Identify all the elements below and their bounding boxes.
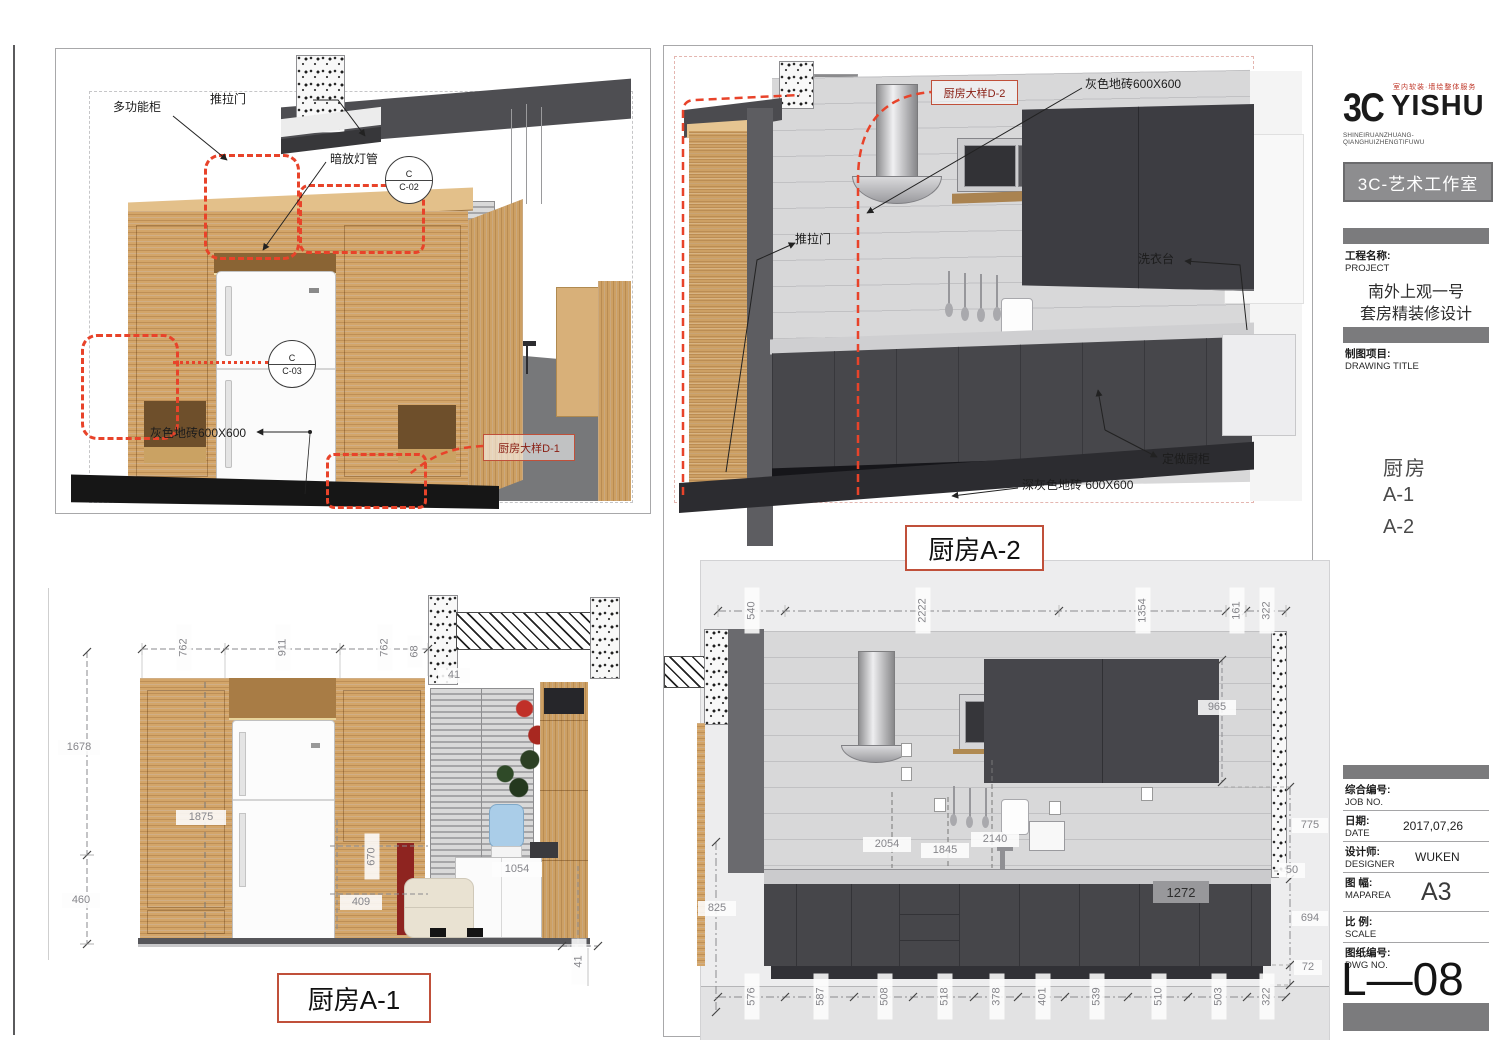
dim-label: 587	[814, 974, 829, 1020]
door-seam	[1251, 884, 1252, 966]
drawer-line	[899, 914, 959, 915]
date-label-en: DATE	[1345, 828, 1370, 839]
dim-label: 965	[1198, 700, 1236, 715]
designer-label-cn: 设计师:	[1345, 846, 1380, 858]
studio-box: 3C-艺术工作室	[1343, 162, 1493, 202]
wall-switch	[901, 743, 912, 757]
divider-bar	[1343, 228, 1489, 244]
label-custom-cabinet: 定做厨柜	[1162, 450, 1210, 467]
elev-toe-kick	[771, 966, 1263, 979]
wood-pillar	[689, 131, 747, 499]
dim-label: 576	[745, 974, 760, 1020]
dim-label: 460	[62, 893, 100, 908]
elev-a1-margin-line	[48, 588, 49, 960]
logo-mark: 3C	[1343, 86, 1383, 131]
utensil	[953, 786, 955, 816]
elev-a1-floor-strip	[138, 944, 590, 947]
elev-a2-door-frame	[697, 723, 705, 966]
divider-bar	[1343, 327, 1489, 343]
fridge-logo	[311, 743, 320, 748]
dim-label: 518	[938, 974, 953, 1020]
dim-label: 2140	[971, 832, 1019, 847]
drawing-name-line1: 厨房	[1383, 452, 1427, 481]
utensil-head	[945, 303, 953, 317]
project-name-line1: 南外上观一号	[1341, 278, 1491, 302]
drawing-name-line3: A-2	[1383, 516, 1414, 539]
elev-a2-column	[704, 629, 730, 725]
map-label-en: MAPAREA	[1345, 890, 1391, 901]
desk-item	[530, 842, 558, 858]
elev-paper-towel	[1001, 799, 1029, 835]
utensil	[948, 271, 950, 305]
dim-label: 911	[276, 625, 291, 671]
dim-label: 503	[1212, 974, 1227, 1020]
utensil-head	[950, 814, 957, 826]
door-inset	[343, 690, 421, 842]
label-floor-tile-a2: 深灰色地砖 600X600	[1022, 476, 1133, 493]
dim-label: 1054	[492, 862, 542, 877]
dim-label: 694	[1292, 911, 1328, 926]
dim-label: 1678	[58, 740, 100, 755]
elev-a2-title-text: 厨房A-2	[928, 530, 1020, 567]
dim-chip-1272: 1272	[1153, 881, 1209, 903]
designer-value: WUKEN	[1415, 850, 1460, 864]
elev-a2-door-band	[728, 629, 764, 873]
divider-bar	[1343, 765, 1489, 779]
wall-switch	[1141, 787, 1153, 801]
logo-tagline-en: SHINEIRUANZHUANG-QIANGHUIZHENGTIFUWU	[1343, 132, 1493, 146]
utensil	[985, 788, 987, 818]
detail-ref-d1: 厨房大样D-1	[483, 434, 575, 461]
seat-line	[405, 907, 473, 908]
dim-label: 68	[408, 636, 423, 668]
dim-label: 508	[878, 974, 893, 1020]
side-wood-counter	[556, 287, 600, 417]
label-laundry: 洗衣台	[1138, 250, 1174, 267]
dim-label: 539	[1090, 974, 1105, 1020]
utensil	[996, 275, 998, 309]
elev-wall-cabinet	[984, 659, 1219, 783]
door-seam	[1019, 884, 1020, 966]
concrete-column	[779, 61, 814, 109]
fridge-split-line	[233, 799, 334, 801]
row-divider	[1343, 911, 1489, 912]
callout-c02-letter: C	[406, 169, 413, 179]
door-inset	[147, 690, 225, 908]
fridge-logo	[309, 288, 319, 293]
fridge-handle	[239, 732, 246, 796]
dim-label: 41	[438, 668, 470, 683]
detail-ref-d2: 厨房大样D-2	[931, 80, 1018, 105]
green-plant	[495, 760, 529, 806]
row-divider	[1343, 942, 1489, 943]
dim-label: 378	[990, 974, 1005, 1020]
label-multi-cabinet: 多功能柜	[113, 98, 161, 115]
elev-a2-beam	[664, 656, 708, 688]
callout-connector	[173, 361, 269, 364]
logo-name: YISHU	[1391, 90, 1485, 123]
shelf-line	[540, 720, 588, 721]
shelf-line	[540, 860, 588, 861]
door-seam	[899, 884, 900, 966]
door-inset	[147, 910, 225, 934]
date-value: 2017,07,26	[1403, 819, 1463, 833]
logo: 3C 室内软装·墙绘整体服务 YISHU SHINEIRUANZHUANG-QI…	[1343, 80, 1493, 150]
label-floor-tile-a1: 灰色地砖600X600	[150, 424, 246, 441]
utensil	[969, 788, 971, 818]
door-seam	[796, 884, 797, 966]
job-label-cn: 综合编号:	[1345, 784, 1391, 796]
fridge-handle	[225, 286, 232, 356]
elev-a1-tall-cabinet	[540, 682, 588, 940]
drawer-line	[899, 940, 959, 941]
dim-label: 2054	[863, 837, 911, 852]
row-divider	[1343, 872, 1489, 873]
dim-label: 762	[177, 625, 192, 671]
dim-label: 775	[1292, 818, 1328, 833]
door-seam	[1079, 884, 1080, 966]
studio-box-text: 3C-艺术工作室	[1358, 170, 1478, 195]
map-value: A3	[1421, 878, 1452, 907]
pendant-cord	[526, 104, 527, 204]
fridge-handle	[239, 813, 246, 887]
label-hidden-light: 暗放灯管	[330, 150, 378, 167]
dim-label: 1354	[1136, 588, 1151, 634]
water-cooler-bottle	[489, 804, 524, 848]
range-hood-chimney	[876, 84, 918, 184]
dim-label: 1845	[921, 843, 969, 858]
detail-callout-region	[204, 154, 300, 260]
shelf-items	[544, 688, 584, 714]
titleblock: 3C 室内软装·墙绘整体服务 YISHU SHINEIRUANZHUANG-QI…	[1341, 60, 1493, 1050]
utensil	[964, 273, 966, 309]
elev-tray	[1029, 821, 1065, 851]
dim-label: 72	[1294, 960, 1322, 975]
wall-switch	[1049, 801, 1061, 815]
utensil-head	[961, 307, 969, 321]
chair-foot	[467, 928, 483, 937]
utensil-head	[982, 816, 989, 828]
dwg-number: L—08	[1341, 952, 1464, 1006]
elev-a1-beam	[456, 612, 592, 650]
drawing-sheet: C C-02 C C-03 多功能柜 推拉门 暗放灯管 灰色地砖600X600 …	[0, 0, 1500, 1060]
dim-label: 161	[1230, 588, 1245, 634]
door-seam	[1139, 884, 1140, 966]
elev-a1-column-right	[590, 597, 620, 679]
dim-label: 510	[1152, 974, 1167, 1020]
microwave-door	[964, 145, 1016, 187]
project-label-cn: 工程名称:	[1345, 250, 1391, 262]
utensil-head	[966, 816, 973, 828]
elev-floor-band	[701, 986, 1329, 1040]
dim-label: 762	[378, 625, 393, 671]
elev-a2-right-concrete	[1271, 631, 1287, 878]
label-sliding-door-a1: 推拉门	[210, 90, 246, 107]
callout-c02: C C-02	[385, 156, 433, 204]
wall-switch	[934, 798, 946, 812]
callout-c02-code: C-02	[399, 182, 419, 192]
utensil-head	[993, 307, 1001, 321]
utensil-head	[977, 308, 985, 322]
cabinet-seam	[1102, 659, 1103, 783]
door-seam	[851, 884, 852, 966]
callout-c03: C C-03	[268, 340, 316, 388]
dim-label: 50	[1279, 863, 1305, 878]
elev-hood-chimney	[858, 651, 895, 751]
project-name-line2: 套房精装修设计	[1341, 300, 1491, 324]
row-divider	[1343, 841, 1489, 842]
wall-switch	[901, 767, 912, 781]
callout-c03-letter: C	[289, 353, 296, 363]
elev-a1-title: 厨房A-1	[277, 973, 431, 1023]
divider-bar	[1343, 1003, 1489, 1031]
dim-label: 41	[572, 939, 587, 985]
label-wall-tile-a2: 灰色地砖600X600	[1085, 75, 1181, 92]
pendant-cord	[541, 107, 542, 204]
table-leg	[526, 346, 528, 374]
drawing-title-label-en: DRAWING TITLE	[1345, 361, 1419, 372]
dim-label: 540	[745, 588, 760, 634]
callout-divider	[386, 180, 432, 181]
dim-label: 670	[365, 834, 380, 880]
dim-label: 409	[340, 895, 382, 910]
designer-label-en: DESIGNER	[1345, 859, 1395, 870]
soffit	[229, 678, 336, 720]
shelf-line	[540, 790, 588, 791]
drawing-name-line2: A-1	[1383, 484, 1414, 507]
utensil	[980, 274, 982, 310]
dim-label: 322	[1260, 588, 1275, 634]
callout-c03-code: C-03	[282, 366, 302, 376]
dim-label: 825	[698, 901, 736, 916]
row-divider	[1343, 810, 1489, 811]
sheet-edge-line	[13, 45, 15, 1035]
elev-a1-title-text: 厨房A-1	[308, 980, 400, 1017]
label-sliding-door-a2: 推拉门	[795, 230, 831, 247]
map-label-cn: 图 幅:	[1345, 877, 1372, 889]
chair-foot	[430, 928, 446, 937]
detail-callout-region	[326, 453, 427, 509]
elev-a1-refrigerator	[232, 720, 335, 942]
callout-divider	[269, 364, 315, 365]
door-seam	[959, 884, 960, 966]
scale-label-cn: 比 例:	[1345, 916, 1372, 928]
drawing-title-label-cn: 制图项目:	[1345, 348, 1391, 360]
dim-label: 1875	[176, 810, 226, 825]
project-label-en: PROJECT	[1345, 263, 1389, 274]
dim-label: 401	[1036, 974, 1051, 1020]
scale-label-en: SCALE	[1345, 929, 1376, 940]
dim-label: 322	[1260, 974, 1275, 1020]
job-label-en: JOB NO.	[1345, 797, 1383, 808]
laundry-counter	[1222, 334, 1296, 436]
elev-a2-title: 厨房A-2	[905, 525, 1044, 571]
pendant-cord	[511, 109, 512, 204]
side-wood-cabinet	[598, 281, 631, 501]
date-label-cn: 日期:	[1345, 815, 1370, 827]
refrigerator	[216, 271, 336, 503]
dim-label: 2222	[916, 588, 931, 634]
